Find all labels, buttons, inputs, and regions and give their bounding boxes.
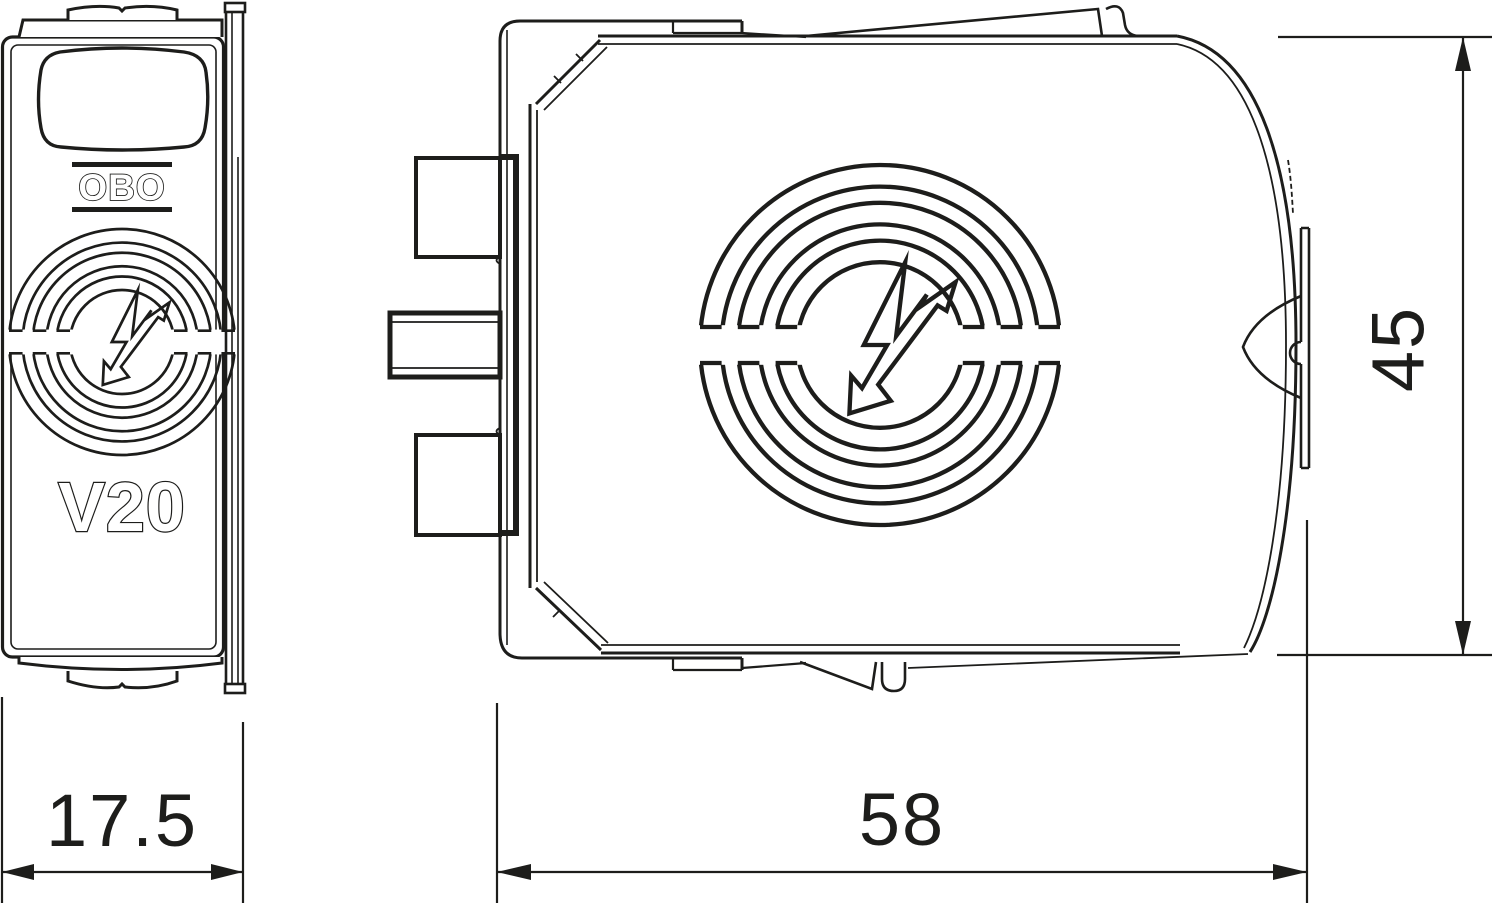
side-top-tab	[68, 6, 177, 20]
side-view: OBO V20	[3, 3, 246, 693]
arrowhead-right	[211, 864, 243, 880]
dimension-drawing-svg: OBO V20	[0, 0, 1500, 912]
rail-top-foot	[225, 3, 245, 12]
brand-label: OBO	[78, 167, 165, 208]
surge-lightning-ring-icon	[695, 165, 1066, 525]
side-bottom-cap	[19, 657, 222, 670]
cover-bottom-chamfer-outer	[536, 588, 601, 650]
front-terminals	[390, 158, 500, 535]
model-label: V20	[58, 468, 186, 546]
side-indicator-window	[39, 48, 208, 150]
brand-logo: OBO	[72, 162, 172, 212]
front-view	[390, 6, 1309, 691]
cover-bottom-slope-line	[908, 654, 1248, 668]
terminal-tab-bottom	[416, 435, 500, 535]
arrowhead-top	[1455, 37, 1471, 71]
cover-top-chamfer-outer	[536, 40, 600, 104]
terminal-tab-top	[416, 158, 500, 257]
dimension-value-17-5: 17.5	[46, 779, 198, 862]
dimension-value-58: 58	[859, 778, 945, 861]
rail-bottom-foot	[225, 684, 245, 693]
side-bottom-tab	[68, 671, 177, 688]
arrowhead-right	[1273, 864, 1307, 880]
base-plate-bottom-tab	[673, 658, 806, 670]
bottom-latch-hook	[882, 662, 905, 691]
drawing-canvas: OBO V20	[0, 0, 1500, 912]
cover-bottom-chamfer-inner	[544, 582, 608, 643]
arrowhead-left	[2, 864, 34, 880]
dimension-side-width: 17.5	[2, 697, 243, 903]
surge-lightning-ring-icon	[6, 229, 239, 455]
contact-face-plate	[1301, 228, 1309, 468]
terminal-pin-inner-lines	[392, 322, 498, 368]
side-top-cap	[19, 20, 222, 37]
dimension-front-width: 58	[497, 520, 1307, 903]
arrowhead-bottom	[1455, 621, 1471, 655]
bottom-latch	[800, 662, 876, 689]
nose-outer-curve	[1177, 36, 1296, 652]
arrowhead-left	[497, 864, 531, 880]
top-latch-hook	[1106, 6, 1138, 36]
dimension-value-45: 45	[1357, 306, 1440, 392]
top-latch	[806, 9, 1102, 36]
nose-serration-detail	[1288, 160, 1293, 214]
cover-top-chamfer-inner	[544, 47, 607, 110]
